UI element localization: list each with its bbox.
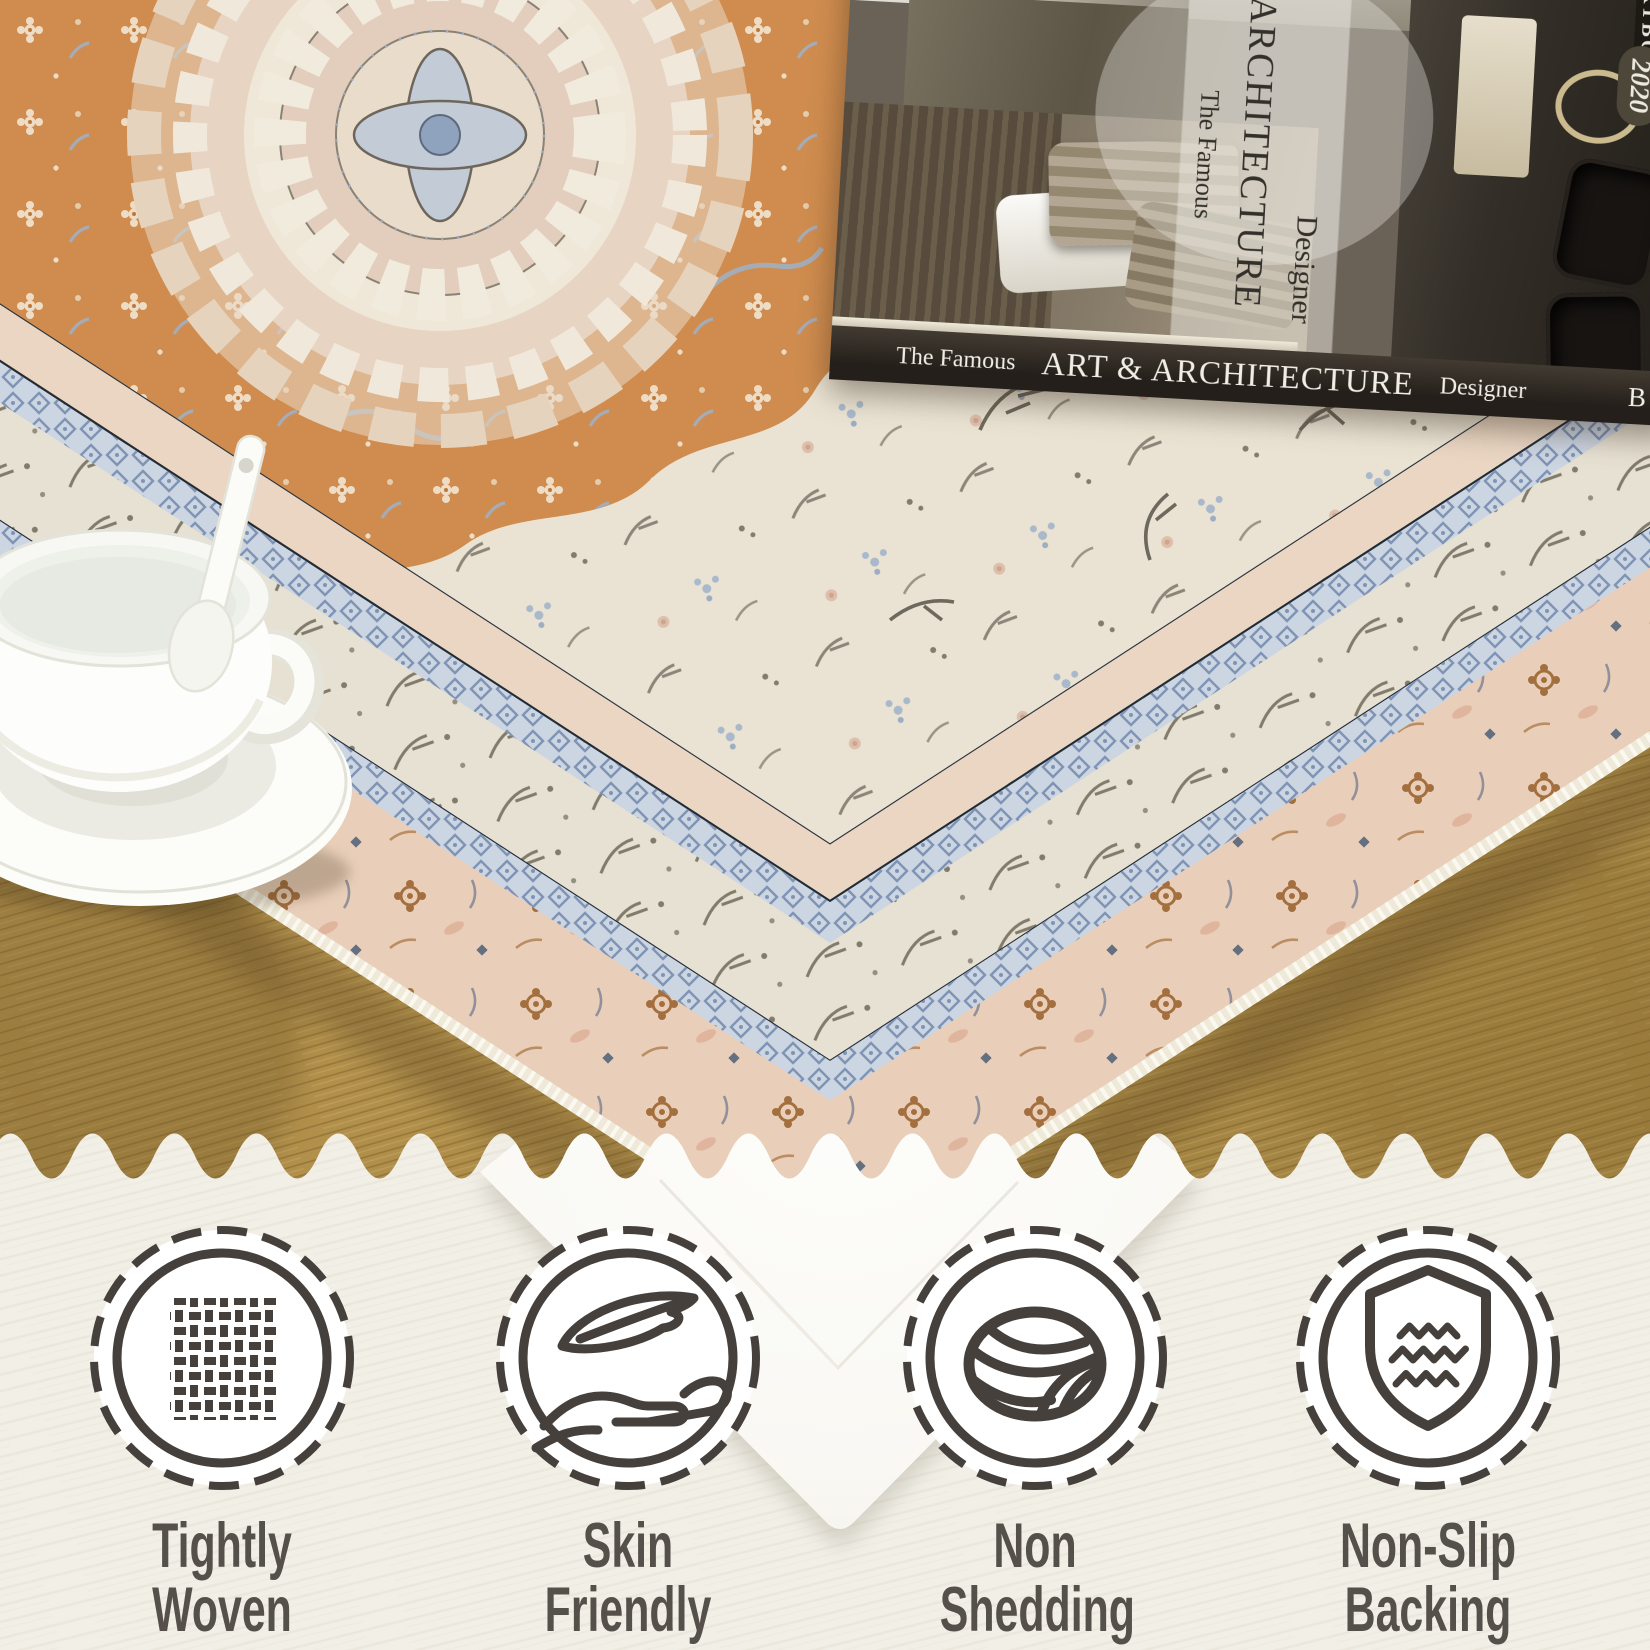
non-shedding-icon [895, 1218, 1175, 1498]
feature-non-slip-backing: Non-Slip Backing [1288, 1218, 1568, 1643]
feature-label: Tightly Woven [127, 1514, 317, 1643]
tightly-woven-icon [82, 1218, 362, 1498]
non-slip-backing-icon [1288, 1218, 1568, 1498]
feature-skin-friendly: Skin Friendly [488, 1218, 768, 1643]
feature-label: Skin Friendly [533, 1514, 723, 1643]
product-image: ARTBOOKS Designer ART & ARCHITECTURE The… [0, 0, 1650, 1650]
feature-tightly-woven: Tightly Woven [82, 1218, 362, 1643]
feature-label: Non Shedding [940, 1514, 1130, 1643]
skin-friendly-icon [488, 1218, 768, 1498]
feature-label: Non-Slip Backing [1333, 1514, 1523, 1643]
feature-non-shedding: Non Shedding [895, 1218, 1175, 1643]
